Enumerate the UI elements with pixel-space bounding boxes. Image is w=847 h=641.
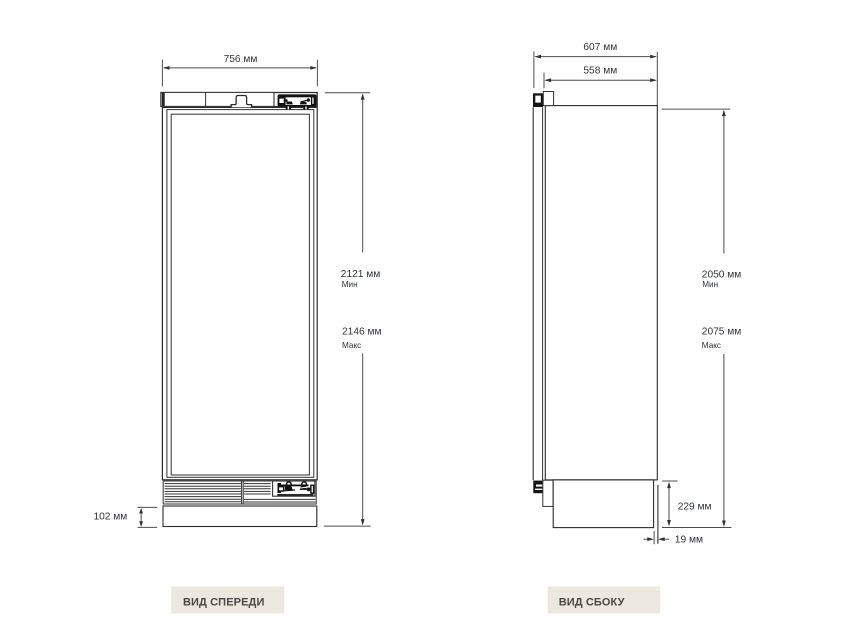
svg-text:229 мм: 229 мм xyxy=(678,501,712,512)
svg-text:2146 мм: 2146 мм xyxy=(342,326,382,337)
svg-text:102 мм: 102 мм xyxy=(93,511,127,522)
svg-text:2075 мм: 2075 мм xyxy=(702,326,742,337)
svg-text:19 мм: 19 мм xyxy=(675,534,703,545)
svg-text:ВИД СБОКУ: ВИД СБОКУ xyxy=(559,596,625,608)
svg-text:756 мм: 756 мм xyxy=(224,54,258,65)
svg-text:607 мм: 607 мм xyxy=(583,42,617,53)
svg-text:ВИД СПЕРЕДИ: ВИД СПЕРЕДИ xyxy=(183,596,264,608)
svg-text:Мин: Мин xyxy=(702,280,718,289)
svg-text:Макс: Макс xyxy=(702,341,721,350)
svg-text:Мин: Мин xyxy=(342,280,358,289)
svg-text:2121 мм: 2121 мм xyxy=(341,269,381,280)
svg-text:558 мм: 558 мм xyxy=(583,66,617,77)
svg-text:2050 мм: 2050 мм xyxy=(702,270,742,281)
svg-text:Макс: Макс xyxy=(342,341,361,350)
